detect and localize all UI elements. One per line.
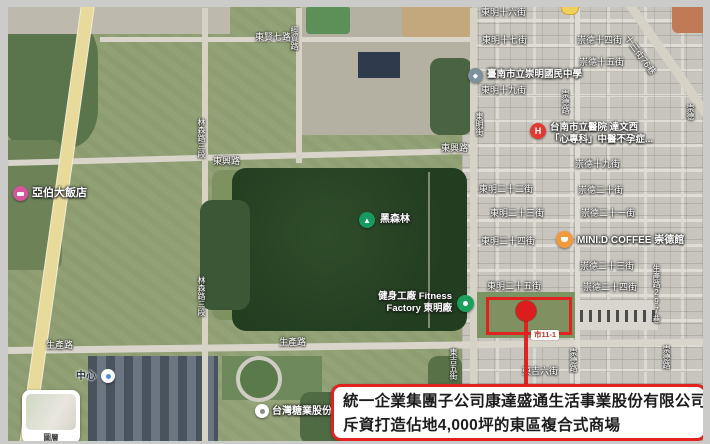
tree-icon[interactable]: ▲ [359,212,375,228]
street-label: 東明街 [475,112,483,136]
map-viewport[interactable]: 東賢七路 東興路 東興路 生產路 生產路 東明十六街 東明十七街 東明十九街 東… [8,7,703,441]
fitness-icon[interactable] [457,295,474,312]
forest-area [200,200,250,310]
street-label: 崇德二十一街 [581,209,635,218]
annotation-line2: 斥資打造佔地4,000坪的東區複合式商場 [343,414,695,438]
cup-glyph [561,237,568,242]
street-label: 東明十七街 [482,36,527,45]
street-label: 東賢七路 [255,33,291,42]
layers-label: 圖層 [22,432,80,441]
street-label: 生產路297巷 [652,264,660,323]
street-label: 東興路 [441,144,468,153]
street-label: 崇德十九街 [575,160,620,169]
layers-thumbnail [26,394,76,430]
poi-label-fitness[interactable]: 健身工廠 Fitness Factory 東明廠 [340,291,452,315]
screenshot-frame: 東賢七路 東興路 東興路 生產路 生產路 東明十六街 東明十七街 東明十九街 東… [0,0,710,444]
satellite-map[interactable]: 東賢七路 東興路 東興路 生產路 生產路 東明十六街 東明十七街 東明十九街 東… [8,7,703,441]
hospital-name: 台南市立醫院 達文西 [550,122,653,134]
annotation-line1: 統一企業集團子公司康達盛通生活事業股份有限公司 [343,390,695,414]
site-tag: 市11-1 [531,330,559,340]
street-label: 崇德二十四街 [583,283,637,292]
hotel-icon[interactable] [13,186,28,201]
fitness-name-line1: 健身工廠 Fitness [340,291,452,303]
hospital-subtitle: 「心專科」中醫不孕症... [550,134,653,146]
street-label: 崇德十四街 [577,36,622,45]
street-label: 崇德路 [662,345,670,369]
hospital-icon[interactable]: H [530,123,546,139]
street-label: 東明十九街 [481,86,526,95]
site-marker-dot [516,301,536,321]
coffee-icon[interactable] [556,231,573,248]
fitness-name-line2: Factory 東明廠 [340,303,452,315]
street-label: 林森路三段 [197,276,205,316]
sports-court [306,7,350,34]
school-icon[interactable]: ◆ [468,68,483,83]
tree-cluster [430,58,472,135]
building-roof [358,52,400,78]
street-label: 東興路 [213,157,240,166]
poi-label-coffee[interactable]: MINI.D COFFEE 崇德館 [577,235,684,248]
running-track [672,7,703,33]
street-label: 崇德路 [569,348,577,372]
street-label: 崇德 [686,104,694,120]
map-layers-toggle[interactable]: 圖層 [22,390,80,441]
street-label: 林森路三段 [197,118,205,158]
dot-glyph [106,374,111,379]
street-label: 崇德二十街 [578,186,623,195]
dot-glyph [260,409,265,414]
parking-lot [580,300,658,330]
poi-label-hotel[interactable]: 亞伯大飯店 [32,187,87,201]
callout-leader-line [524,318,528,388]
roundabout [236,356,282,402]
street-label: 生產路 [46,341,73,350]
poi-dot-icon[interactable] [255,404,269,418]
terrain-patch [8,7,230,34]
poi-dot-icon[interactable] [101,369,115,383]
street-label: 崇德十五街 [579,58,624,67]
ballfield [402,7,470,40]
poi-label-forest[interactable]: 黑森林 [380,214,410,227]
street-label: 東明二十三街 [490,209,544,218]
bed-glyph [17,192,24,196]
street-label: 東明二十四街 [481,237,535,246]
poi-label-center-partial[interactable]: 中心 [76,371,96,384]
annotation-callout: 統一企業集團子公司康達盛通生活事業股份有限公司 斥資打造佔地4,000坪的東區複… [331,384,703,441]
street-label: 生產路 [279,338,306,347]
street-label: 東明二十二街 [479,185,533,194]
street-label: 東吉五街 [449,348,457,380]
street-label: 東明十六街 [481,8,526,17]
street-label: 崇德路 [561,90,569,114]
poi-label-school[interactable]: 臺南市立崇明國民中學 [487,69,582,81]
fitness-glyph [463,301,468,306]
street-label: 東明二十五街 [487,282,541,291]
street-label: 崇德二十三街 [580,262,634,271]
street-label: 經貿路 [290,26,298,50]
poi-label-hospital[interactable]: 台南市立醫院 達文西 「心專科」中醫不孕症... [550,122,653,146]
